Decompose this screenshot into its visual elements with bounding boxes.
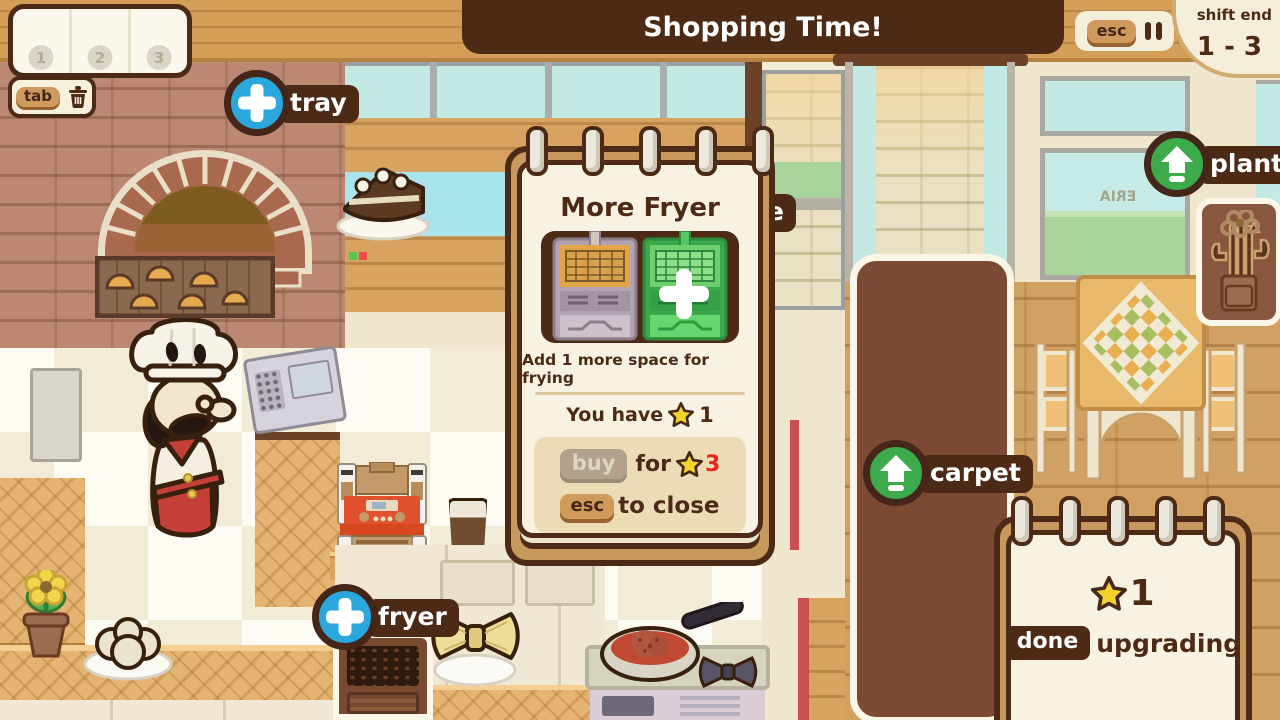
burner-knob: [698, 652, 758, 692]
tray-slot[interactable]: 2: [72, 9, 131, 73]
add-fryer-button[interactable]: [312, 584, 378, 650]
notepad-ring-icon: [526, 126, 548, 176]
tray-slot-number: 1: [29, 45, 54, 70]
cabinet-drawer: [525, 560, 595, 606]
red-corner-stripe: [790, 420, 799, 550]
pause-panel: esc: [1075, 11, 1174, 51]
you-have-label: You have: [566, 404, 663, 426]
notepad-ring-icon: [1059, 496, 1081, 546]
door-lintel: [833, 54, 1028, 66]
stock-indicator-red: [359, 252, 367, 260]
game-screen: ERIA: [0, 0, 1280, 720]
star-icon: [1091, 576, 1127, 612]
done-upgrading-note: 1 done upgrading: [994, 516, 1252, 720]
upgrade-arrow-icon: [879, 454, 913, 492]
plus-icon: [238, 84, 276, 122]
wall-fixture: [30, 368, 82, 462]
notepad-ring-icon: [1107, 496, 1129, 546]
cake-slice-display: [333, 148, 433, 243]
fryer-vat: [347, 646, 419, 686]
plus-icon: [326, 598, 364, 636]
more-fryer-popup: More Fryer: [505, 146, 775, 566]
star-count: 1: [1129, 573, 1154, 614]
bread-shelf: [95, 256, 275, 318]
tray-slot-bar: 1 2 3: [8, 4, 192, 78]
trash-icon: [68, 86, 88, 108]
shift-end-label: shift end: [1197, 6, 1272, 24]
action-panel: buy for 3 esc to close: [534, 437, 746, 533]
cost-value: 3: [705, 452, 720, 477]
window-band-upper: [345, 62, 762, 118]
notepad-ring-icon: [1011, 496, 1033, 546]
buy-row: buy for 3: [534, 449, 746, 479]
tray-slot-number: 2: [88, 45, 113, 70]
notepad-ring-icon: [695, 126, 717, 176]
door-side-glass: [853, 66, 876, 282]
cabinet-front-left: [0, 700, 335, 720]
upgrade-arrow-icon: [1160, 145, 1194, 183]
red-corner-stripe: [798, 598, 809, 720]
chef-character: [108, 318, 258, 553]
close-row: esc to close: [534, 493, 746, 519]
esc-key-button[interactable]: esc: [1087, 20, 1137, 43]
done-key-button[interactable]: done: [1006, 626, 1090, 660]
buy-key-button[interactable]: buy: [560, 449, 628, 479]
mirrored-storefront-sign: ERIA: [1063, 189, 1173, 205]
notepad-ring-icon: [752, 126, 774, 176]
tray-slot-number: 3: [147, 45, 172, 70]
machine-buttons: [254, 369, 286, 413]
plant-upgrade-label: plant: [1198, 146, 1280, 184]
flower-pot: [18, 570, 74, 660]
fryer-vent: [347, 692, 419, 714]
notepad-ring-icon: [1203, 496, 1225, 546]
star-icon: [668, 402, 694, 428]
stove-vent: [680, 696, 740, 716]
tall-cabinet: [255, 432, 340, 607]
window-mullion: [660, 62, 667, 118]
fryer-upgrade-illustration: [552, 231, 728, 343]
upgrading-label: upgrading: [1096, 629, 1240, 658]
kitchen-machine: [243, 345, 348, 435]
stock-indicator-green: [349, 252, 357, 260]
done-row: done upgrading: [1006, 626, 1240, 660]
notepad-ring-icon: [1155, 496, 1177, 546]
trash-button[interactable]: [68, 86, 88, 108]
right-window-upper: [1040, 76, 1190, 136]
for-label: for: [635, 452, 671, 477]
fryer-upgrade-label: fryer: [366, 599, 459, 637]
popup-page: More Fryer: [517, 160, 763, 538]
upgrade-carpet-button[interactable]: [863, 440, 929, 506]
popup-description: Add 1 more space for frying: [522, 351, 758, 387]
pause-icon[interactable]: [1145, 22, 1162, 40]
notepad-ring-icon: [639, 126, 661, 176]
popup-title: More Fryer: [560, 193, 720, 223]
stove-drawer: [602, 696, 654, 716]
star-count-row: 1: [1091, 573, 1154, 614]
add-tray-button[interactable]: [224, 70, 290, 136]
banner-text: Shopping Time!: [643, 12, 883, 43]
carpet-upgrade-label: carpet: [918, 455, 1033, 493]
tray-upgrade-label: tray: [278, 85, 359, 123]
hedge: [1045, 211, 1185, 275]
machine-screen: [287, 359, 334, 399]
popup-esc-key[interactable]: esc: [560, 494, 614, 519]
tab-trash-panel: tab: [8, 76, 96, 118]
tray-slot[interactable]: 3: [131, 9, 187, 73]
done-note-page: 1 done upgrading: [1006, 530, 1240, 720]
coffee-cup: [447, 498, 489, 552]
shopping-time-banner: Shopping Time!: [462, 0, 1064, 54]
shift-range: 1 - 3: [1197, 32, 1262, 62]
you-have-row: You have 1: [566, 402, 713, 428]
door-post: [845, 62, 853, 282]
tray-slot[interactable]: 1: [13, 9, 72, 73]
upgrade-plant-button[interactable]: [1144, 131, 1210, 197]
door-side-glass: [984, 66, 1007, 282]
door-post: [1007, 62, 1015, 282]
window-mullion: [545, 62, 552, 118]
cactus-icon: [1208, 210, 1270, 314]
stove-front: [590, 690, 765, 720]
you-have-count: 1: [699, 403, 714, 427]
door-stone-path: [876, 66, 984, 282]
tab-key-button[interactable]: tab: [16, 87, 60, 107]
plant-item-card[interactable]: [1196, 198, 1280, 326]
star-icon: [676, 451, 703, 478]
notepad-ring-icon: [582, 126, 604, 176]
window-mullion: [430, 62, 437, 118]
close-label: to close: [618, 493, 719, 519]
upgrade-preview-panel: [541, 231, 739, 343]
divider: [535, 392, 745, 395]
plate-of-buns: [82, 608, 174, 682]
